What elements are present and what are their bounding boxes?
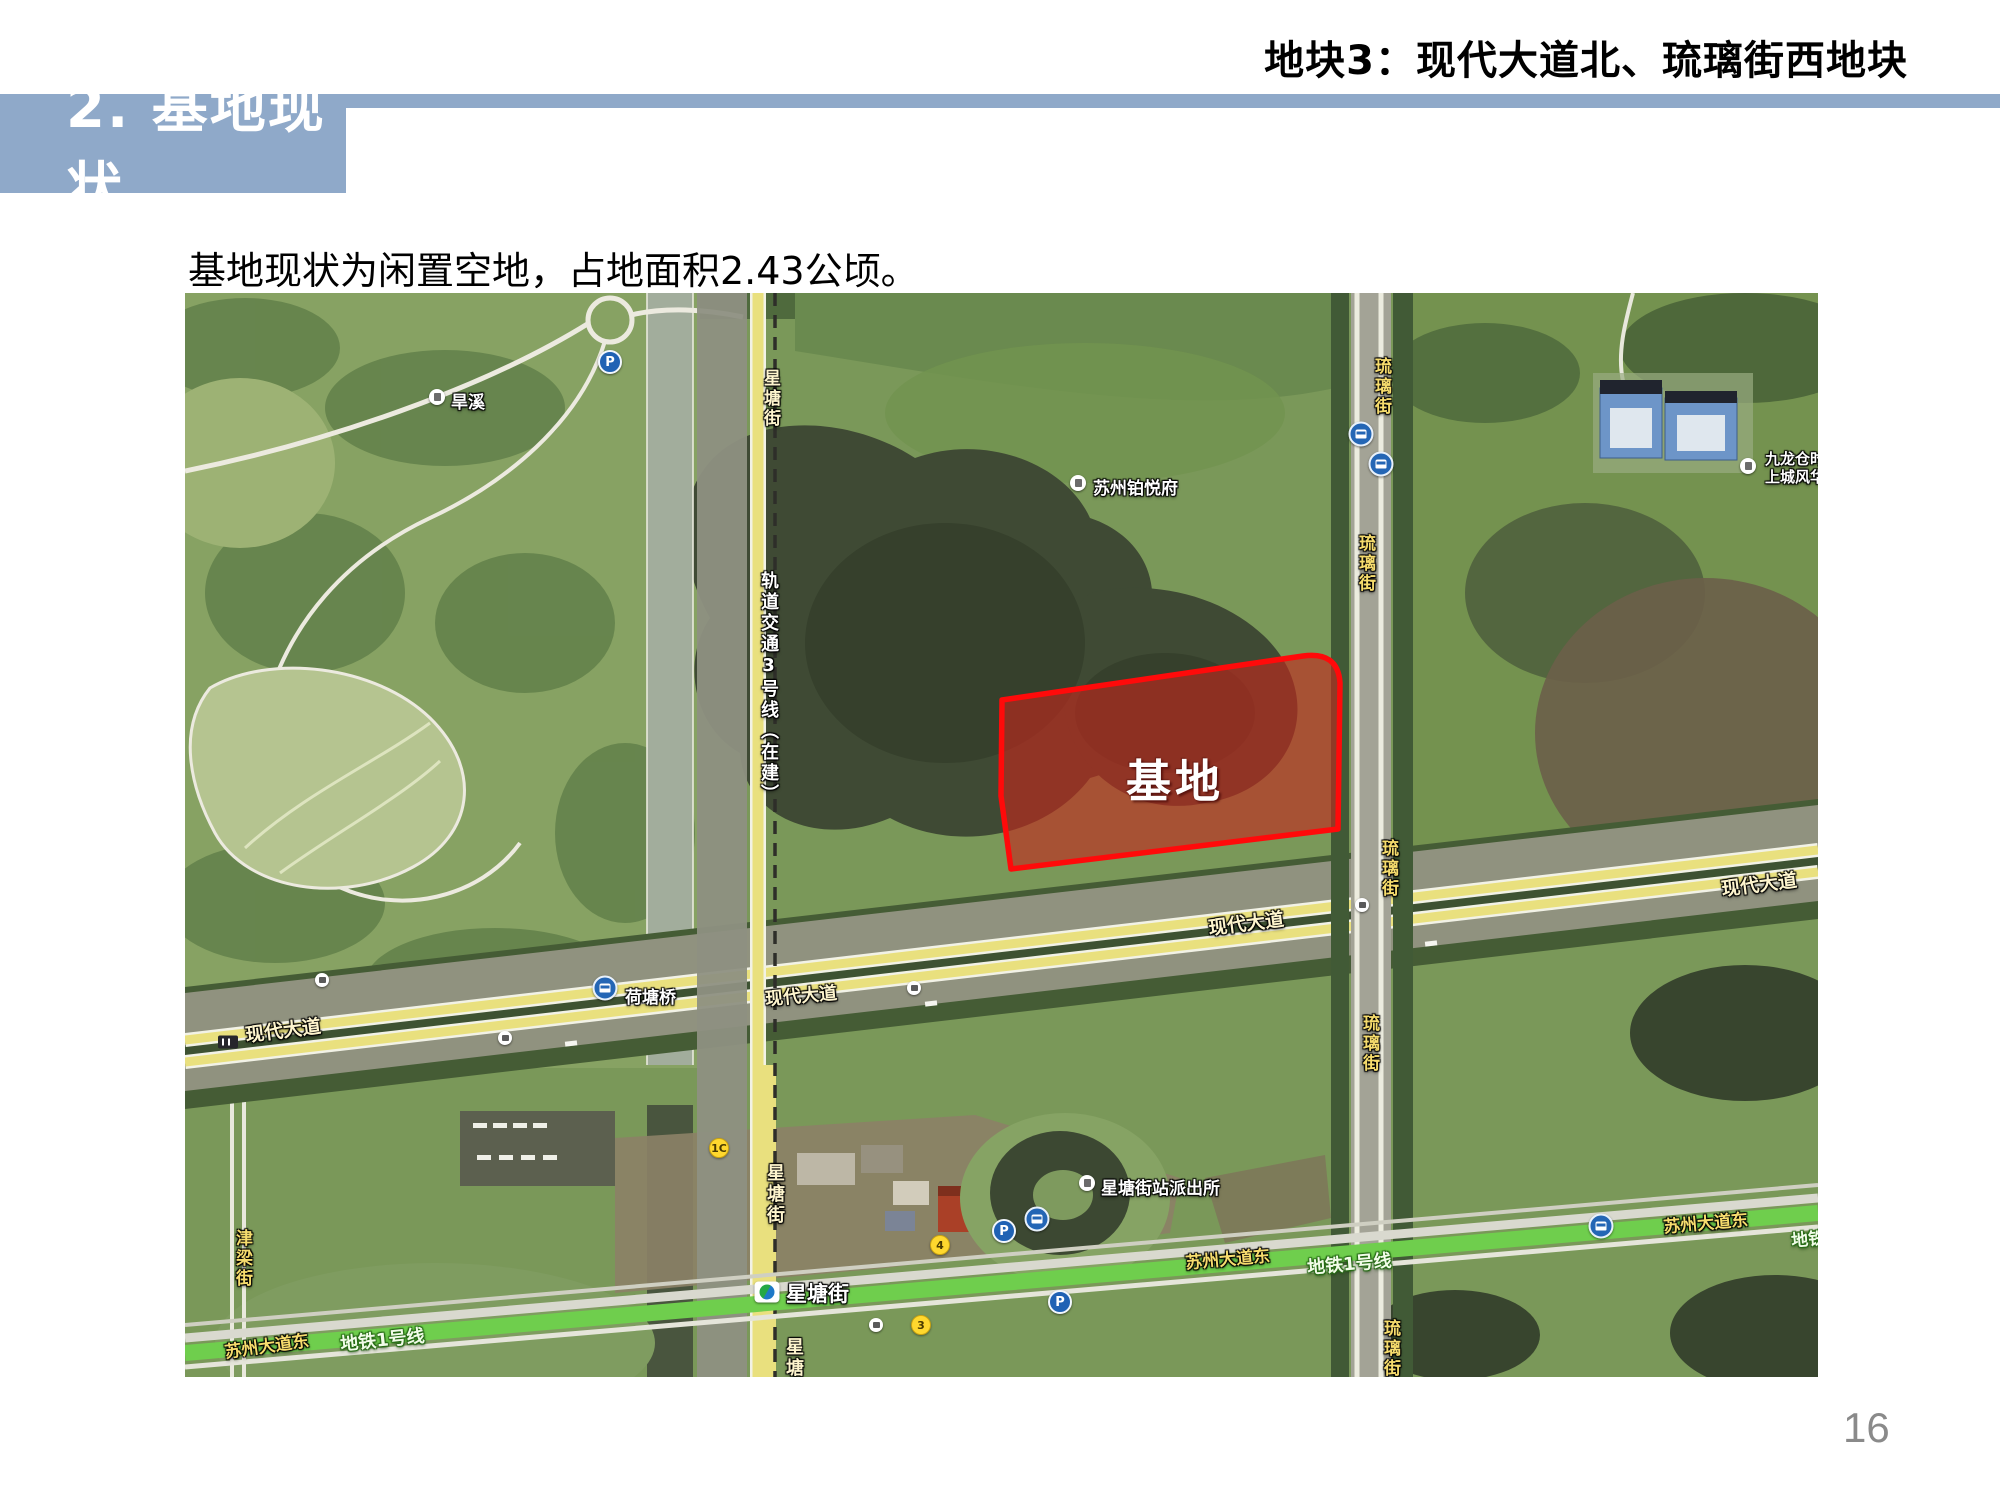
page-number: 16 (1843, 1404, 1890, 1452)
bus-stop-icon-small (869, 1318, 883, 1332)
road-label-liulijie-5: 琉璃街 (1378, 1319, 1403, 1377)
bus-stop-icon-small (907, 981, 921, 995)
poi-label-hetang-bridge: 荷塘桥 (625, 983, 676, 1008)
poi-label-metro-station: 星塘街 (786, 1278, 849, 1308)
road-label-xingtangjie-bottom: 星塘街 (780, 1337, 806, 1377)
slide: 地块3：现代大道北、琉璃街西地块 2. 基地现状 基地现状为闲置空地，占地面积2… (0, 0, 2000, 1500)
police-poi-icon (1079, 1175, 1095, 1191)
site-label: 基地 (1126, 745, 1224, 810)
metro-exit-4-icon: 4 (930, 1235, 950, 1255)
metro-exit-1c-icon: 1C (709, 1138, 729, 1158)
jiulongcang-poi-icon (1740, 458, 1756, 474)
bus-stop-icon-small (1355, 898, 1369, 912)
boyuefu-poi-icon (1070, 475, 1086, 491)
road-label-liulijie-1: 琉璃街 (1369, 357, 1394, 417)
road-label-rail-line3: 轨道交通3号线（在建） (755, 571, 781, 805)
satellite-map: 旱溪 P 星塘街 轨道交通3号线（在建） 苏州铂悦府 琉璃街 琉璃街 九龙仓时 … (185, 293, 1818, 1377)
road-label-xingtangjie-mid: 星塘街 (761, 1163, 787, 1226)
road-label-liulijie-3: 琉璃街 (1376, 839, 1401, 899)
poi-label-jiulongcang-2: 上城风华 (1765, 466, 1818, 487)
satellite-map-graphic (185, 293, 1818, 1377)
bus-stop-icon-small (315, 973, 329, 987)
slide-header-title: 地块3：现代大道北、琉璃街西地块 (1264, 28, 1908, 86)
road-label-xingtangjie-top: 星塘街 (758, 369, 783, 429)
bus-stop-icon (1369, 452, 1394, 477)
poi-label-hanxi: 旱溪 (451, 388, 485, 413)
parking-icon: P (598, 350, 622, 374)
hanxi-poi-icon (429, 389, 445, 405)
bus-stop-icon (1349, 422, 1374, 447)
bridge-icon (218, 1036, 238, 1049)
bus-stop-icon-small (498, 1031, 512, 1045)
poi-label-boyuefu: 苏州铂悦府 (1093, 474, 1178, 499)
caption-text: 基地现状为闲置空地，占地面积2.43公顷。 (188, 240, 919, 295)
metro-exit-3-icon: 3 (911, 1315, 931, 1335)
metro-logo-icon (755, 1282, 780, 1303)
road-label-liulijie-4: 琉璃街 (1357, 1014, 1382, 1074)
road-label-jinliangjie: 津梁街 (230, 1229, 255, 1289)
poi-label-police: 星塘街站派出所 (1101, 1174, 1220, 1199)
parking-icon: P (1048, 1290, 1072, 1314)
section-title-block: 2. 基地现状 (0, 94, 346, 193)
section-title: 2. 基地现状 (0, 63, 346, 225)
bus-stop-icon (1589, 1214, 1614, 1239)
bus-stop-icon (1025, 1207, 1050, 1232)
road-label-liulijie-2: 琉璃街 (1353, 534, 1378, 594)
bus-stop-icon (593, 976, 618, 1001)
truck-compound (460, 1111, 615, 1186)
parking-icon: P (992, 1219, 1016, 1243)
